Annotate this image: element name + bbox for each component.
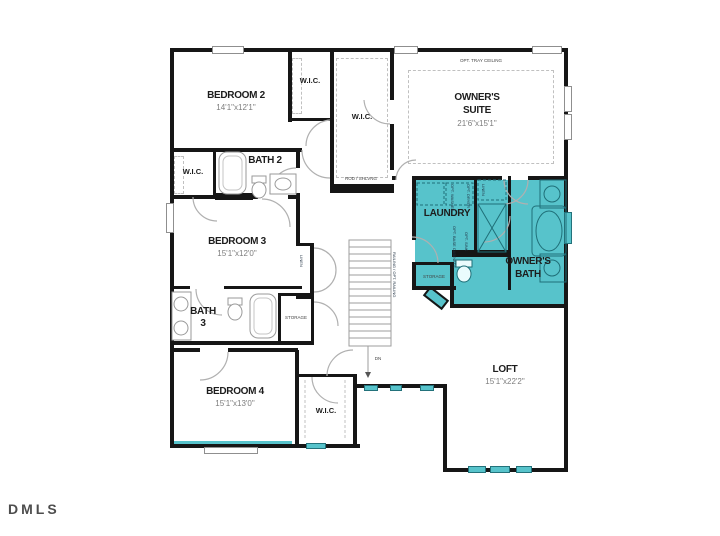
window bbox=[166, 203, 174, 233]
toilet-icon bbox=[252, 176, 266, 183]
window bbox=[564, 114, 572, 140]
wall bbox=[295, 350, 299, 444]
sink-icon bbox=[270, 174, 296, 194]
staircase bbox=[349, 240, 391, 346]
vanity bbox=[172, 292, 191, 340]
wall bbox=[170, 48, 174, 446]
door-arc bbox=[327, 350, 353, 376]
stairs-down-arrow bbox=[365, 372, 371, 378]
wall bbox=[296, 197, 300, 243]
window bbox=[204, 447, 258, 454]
wall bbox=[412, 262, 454, 265]
stairs-down-label: DN bbox=[375, 356, 382, 361]
window bbox=[212, 46, 244, 54]
laundry-opt-base-note: OPT. BASE CABINETS bbox=[452, 226, 457, 268]
window bbox=[516, 466, 532, 473]
room-label-bath3-1: BATH bbox=[190, 306, 216, 317]
room-label-bath2: BATH 2 bbox=[248, 155, 282, 166]
room-label-storage-bath3: STORAGE bbox=[285, 315, 307, 320]
wall bbox=[278, 293, 314, 296]
wall bbox=[170, 444, 360, 448]
wall bbox=[311, 293, 314, 343]
wall bbox=[390, 124, 394, 170]
room-dims-bedroom4: 15'1"x13'0" bbox=[215, 399, 254, 408]
laundry-opt-sink-note: OPT. SINK bbox=[464, 232, 469, 251]
room-label-owners-suite-1: OWNER'S bbox=[454, 92, 499, 103]
room-dims-bedroom3: 15'1"x12'0" bbox=[217, 249, 256, 258]
wall bbox=[508, 176, 511, 254]
door-arc bbox=[314, 270, 336, 292]
tray-ceiling-outline bbox=[408, 70, 554, 164]
owners-wic-shelf-note: ROD / SHLVNG bbox=[345, 176, 377, 181]
wall bbox=[170, 341, 314, 345]
window bbox=[564, 212, 572, 244]
wall bbox=[330, 184, 394, 193]
wall bbox=[288, 118, 334, 121]
window bbox=[532, 46, 562, 54]
bathtub-inner bbox=[223, 156, 242, 190]
watermark: DMLS bbox=[8, 501, 60, 517]
room-label-owners-bath-2: BATH bbox=[515, 269, 541, 280]
window bbox=[490, 466, 510, 473]
laundry-opt-dryer-note: OPT. DRYER bbox=[466, 184, 471, 208]
toilet-icon bbox=[228, 304, 242, 320]
stairs-treads bbox=[349, 247, 391, 338]
door-arc bbox=[302, 150, 330, 178]
wall bbox=[390, 48, 394, 100]
wall bbox=[288, 48, 292, 122]
room-dims-owners-suite: 21'6"x15'1" bbox=[457, 119, 496, 128]
door-arc bbox=[306, 120, 330, 146]
wall bbox=[412, 176, 416, 240]
sink-icon bbox=[174, 321, 188, 335]
room-label-wic-hall: W.I.C. bbox=[183, 167, 203, 176]
room-dims-bedroom2: 14'1"x12'1" bbox=[216, 103, 255, 112]
wall bbox=[450, 304, 568, 308]
sink-icon bbox=[174, 297, 188, 311]
room-label-wic-bedroom2: W.I.C. bbox=[300, 76, 320, 85]
room-label-bath3-2: 3 bbox=[200, 318, 205, 329]
tray-ceiling-note: OPT. TRAY CEILING bbox=[460, 58, 502, 63]
wall bbox=[353, 374, 357, 446]
room-label-owners-suite-2: SUITE bbox=[463, 105, 491, 116]
room-label-linen-hall: LINEN bbox=[299, 255, 304, 267]
wall bbox=[310, 243, 314, 299]
window bbox=[390, 385, 402, 391]
wall bbox=[295, 374, 357, 377]
room-label-wic-bedroom4: W.I.C. bbox=[316, 406, 336, 415]
wall bbox=[228, 348, 298, 352]
wall bbox=[443, 384, 447, 472]
room-label-bedroom2: BEDROOM 2 bbox=[207, 90, 265, 101]
door-arc bbox=[200, 352, 228, 380]
wall bbox=[416, 176, 502, 180]
wall bbox=[452, 250, 510, 257]
wall bbox=[170, 286, 190, 289]
room-label-loft: LOFT bbox=[493, 364, 518, 375]
wall bbox=[296, 148, 300, 168]
room-label-linen-owners: LINEN bbox=[481, 184, 486, 196]
floor-plan: BEDROOM 2 14'1"x12'1" W.I.C. W.I.C. ROD … bbox=[0, 0, 720, 536]
room-label-bedroom4: BEDROOM 4 bbox=[206, 386, 264, 397]
wall bbox=[330, 48, 334, 188]
window bbox=[564, 86, 572, 112]
door-arc bbox=[314, 302, 338, 326]
wall bbox=[392, 176, 396, 180]
room-label-owners-wic: W.I.C. bbox=[352, 112, 372, 121]
window bbox=[468, 466, 486, 473]
door-arc bbox=[193, 197, 217, 221]
wall bbox=[278, 293, 281, 343]
wall bbox=[224, 286, 302, 289]
toilet-icon bbox=[228, 298, 242, 305]
wall bbox=[528, 176, 568, 180]
door-arc bbox=[262, 199, 290, 227]
bathtub-inner bbox=[254, 298, 272, 334]
room-label-bedroom3: BEDROOM 3 bbox=[208, 236, 266, 247]
wall bbox=[170, 148, 302, 152]
wall bbox=[330, 148, 334, 152]
bathtub-icon bbox=[250, 294, 276, 338]
window bbox=[394, 46, 418, 54]
room-label-storage-owners: STORAGE bbox=[423, 274, 445, 279]
window bbox=[364, 385, 378, 391]
door-arc bbox=[312, 377, 338, 403]
sink-icon bbox=[275, 178, 291, 190]
window bbox=[306, 443, 326, 449]
wic2-shelving bbox=[292, 58, 302, 114]
stairs-railing-note: RAILING / OPT. RAILING bbox=[392, 252, 397, 297]
window bbox=[420, 385, 434, 391]
laundry-opt-washer-note: OPT. WASHER bbox=[450, 184, 455, 211]
room-dims-loft: 15'1"x22'2" bbox=[485, 377, 524, 386]
room-label-laundry: LAUNDRY bbox=[424, 208, 470, 219]
room-label-owners-bath-1: OWNER'S bbox=[505, 256, 550, 267]
wall bbox=[213, 150, 216, 197]
wall bbox=[474, 176, 477, 254]
door-arc bbox=[314, 248, 336, 270]
wall bbox=[170, 348, 200, 352]
door-arc bbox=[270, 168, 296, 194]
wall bbox=[170, 195, 258, 199]
bathtub-icon bbox=[219, 152, 246, 194]
